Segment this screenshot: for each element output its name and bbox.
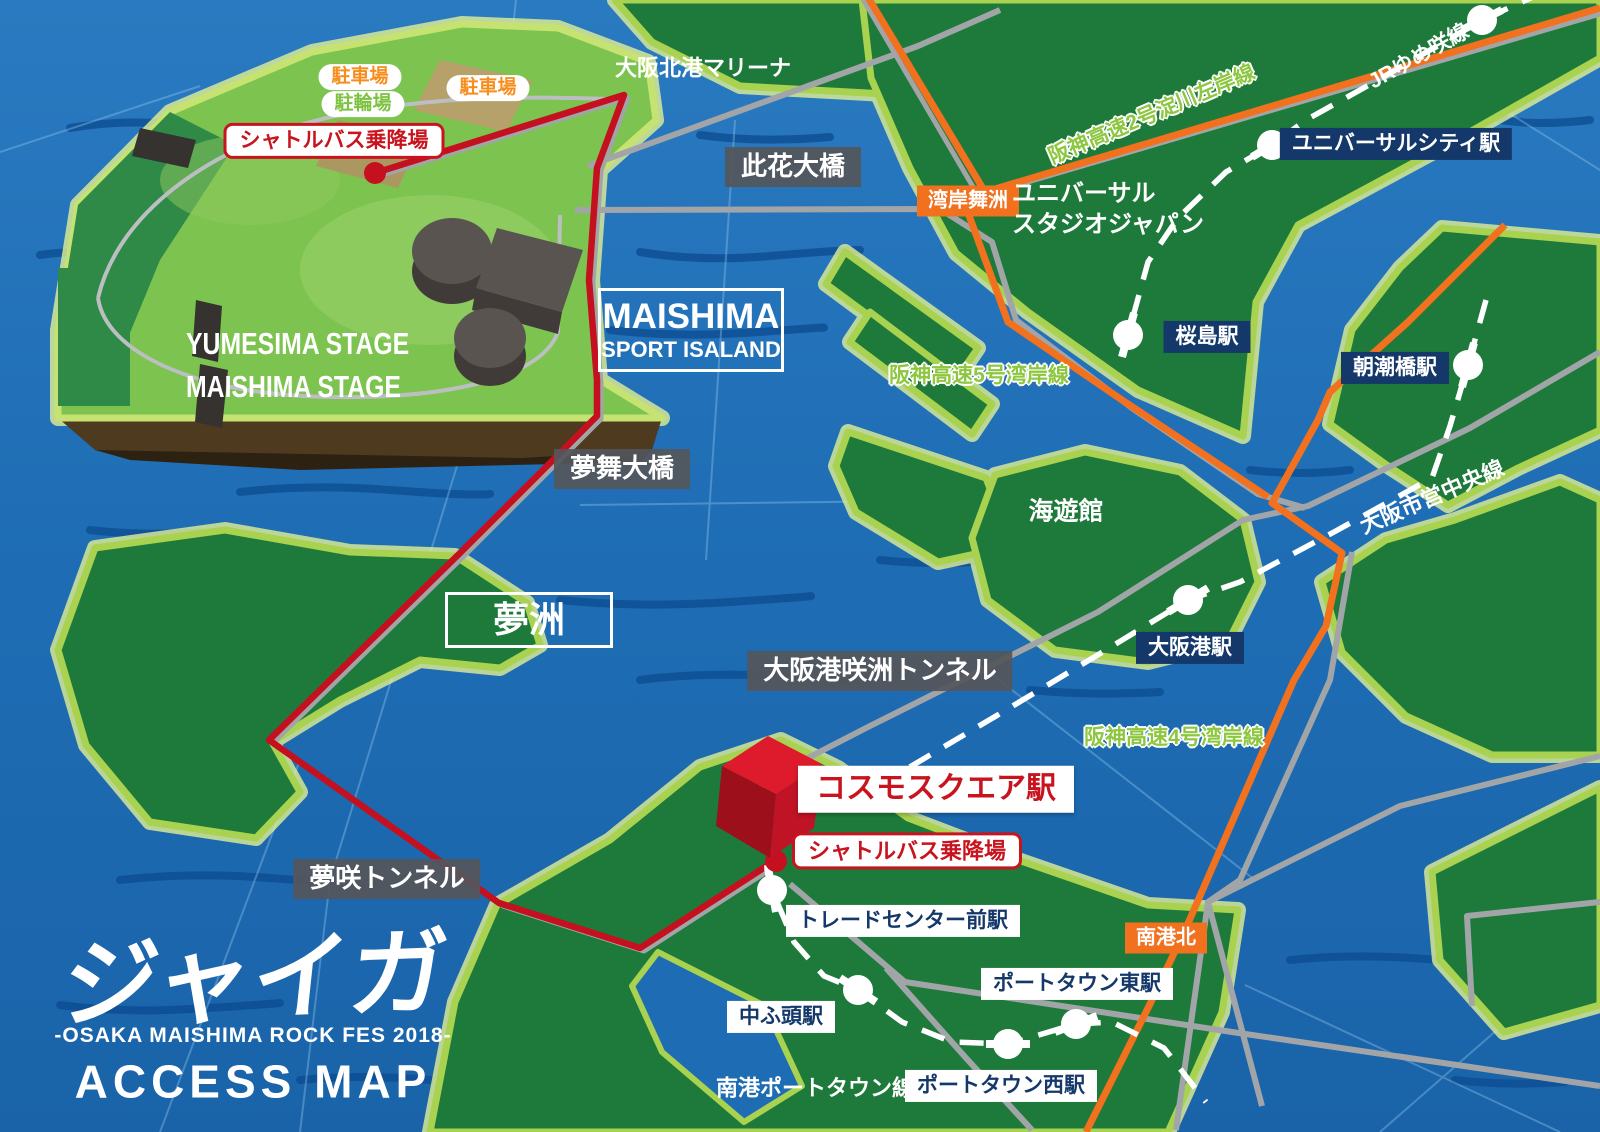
bicycle-parking-label: 駐輪場 [321,91,404,117]
station-dot-nakafuto [843,975,873,1005]
hanshin5-label: 阪神高速5号湾岸線 [889,364,1069,388]
access-map: 駐車場 駐輪場 駐車場 シャトルバス乗降場 YUMESIMA STAGE MAI… [0,0,1600,1132]
station-dot-osakako [1173,585,1203,615]
station-dot-jr-terminal [1467,5,1497,35]
cosmosquare-station-label: コスモスクエア駅 [798,766,1074,813]
trade-center-station-label: トレードセンター前駅 [786,905,1020,937]
nakafuto-station-label: 中ふ頭駅 [727,1001,835,1033]
maishima-sport-island-line2: SPORT ISALAND [601,337,781,362]
asashiobashi-station-label: 朝潮橋駅 [1341,352,1449,384]
shuttle-stop-dot-north [364,162,386,184]
station-dot-porttown-west [993,1029,1023,1059]
marina-label: 大阪北港マリーナ [615,55,791,80]
yumeshima-box: 夢洲 [445,592,613,648]
nanko-porttown-line-label: 南港ポートタウン線 [716,1075,914,1100]
sakishima-tunnel-label: 大阪港咲洲トンネル [747,651,1012,691]
wangan-maishima-ic-label: 湾岸舞洲 [917,186,1019,217]
nankokita-ic-label: 南港北 [1125,923,1207,954]
usj-label-line2: スタジオジャパン [1012,209,1204,240]
usj-label: ユニバーサル スタジオジャパン [1012,178,1204,240]
maishima-stage-label: MAISHIMA STAGE [186,369,401,405]
shuttle-bus-stop-label-south: シャトルバス乗降場 [792,832,1022,869]
sakurajima-station-label: 桜島駅 [1164,321,1251,353]
station-dot-porttown-east [1061,1009,1091,1039]
station-dot-sakurajima [1113,320,1143,350]
porttown-west-station-label: ポートタウン西駅 [905,1070,1097,1102]
porttown-east-station-label: ポートタウン東駅 [981,968,1173,1000]
parking-label-1: 駐車場 [318,64,401,90]
access-map-heading: ACCESS MAP [75,1056,432,1109]
yumesaki-tunnel-label: 夢咲トンネル [293,859,480,899]
yumemai-bridge-label: 夢舞大橋 [554,449,690,489]
maishima-sport-island-line1: MAISHIMA [601,297,781,337]
kaiyukan-label: 海遊館 [1028,498,1103,527]
osakako-station-label: 大阪港駅 [1136,632,1244,664]
yumesima-stage-label: YUMESIMA STAGE [186,326,409,362]
usj-label-line1: ユニバーサル [1012,178,1204,209]
shuttle-bus-stop-label-north: シャトルバス乗降場 [224,123,445,159]
universal-city-station-label: ユニバーサルシティ駅 [1280,128,1512,160]
station-dot-asashiobashi [1453,350,1483,380]
maishima-sport-island-box: MAISHIMA SPORT ISALAND [598,288,784,372]
parking-label-2: 駐車場 [446,75,529,101]
hanshin4-label: 阪神高速4号湾岸線 [1084,726,1264,750]
festival-logo-subtitle: -OSAKA MAISHIMA ROCK FES 2018- [54,1024,451,1048]
station-dot-trade-center [757,875,787,905]
konohana-bridge-label: 此花大橋 [725,147,861,187]
